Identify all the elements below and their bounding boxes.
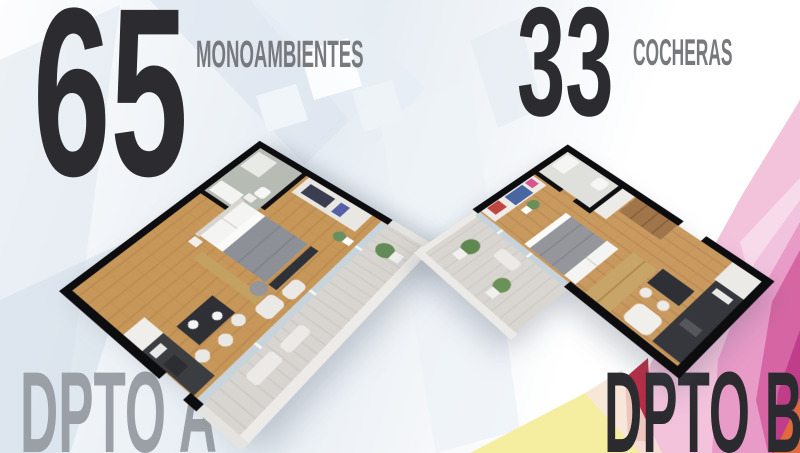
promo-graphic: DPTO A DPTO B xyxy=(0,0,800,453)
parking-count: 33 xyxy=(517,0,614,139)
label-cocheras: COCHERAS xyxy=(633,34,733,71)
unit-count: 65 xyxy=(33,0,188,212)
label-monoambientes: MONOAMBIENTES xyxy=(196,36,364,74)
